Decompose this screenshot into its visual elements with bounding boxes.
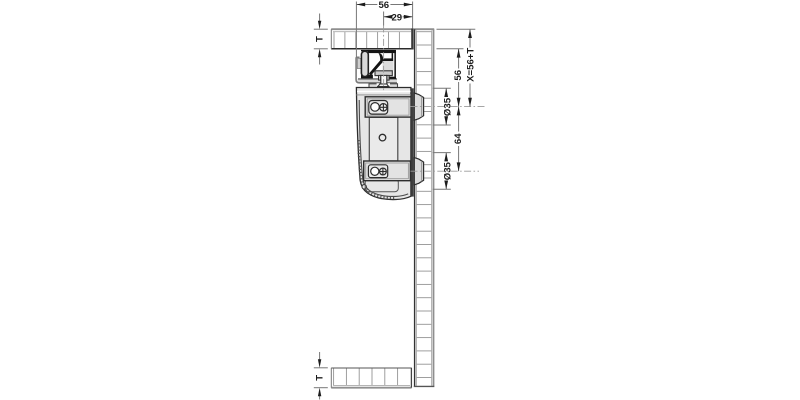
svg-text:56: 56: [378, 0, 389, 11]
svg-text:29: 29: [391, 12, 402, 23]
svg-text:X=56+T: X=56+T: [465, 48, 476, 82]
svg-text:Ø35: Ø35: [442, 161, 453, 180]
svg-text:Ø35: Ø35: [442, 97, 453, 116]
svg-text:56: 56: [453, 70, 464, 81]
svg-text:T: T: [314, 375, 325, 381]
svg-text:64: 64: [453, 133, 464, 144]
svg-text:T: T: [314, 36, 325, 42]
